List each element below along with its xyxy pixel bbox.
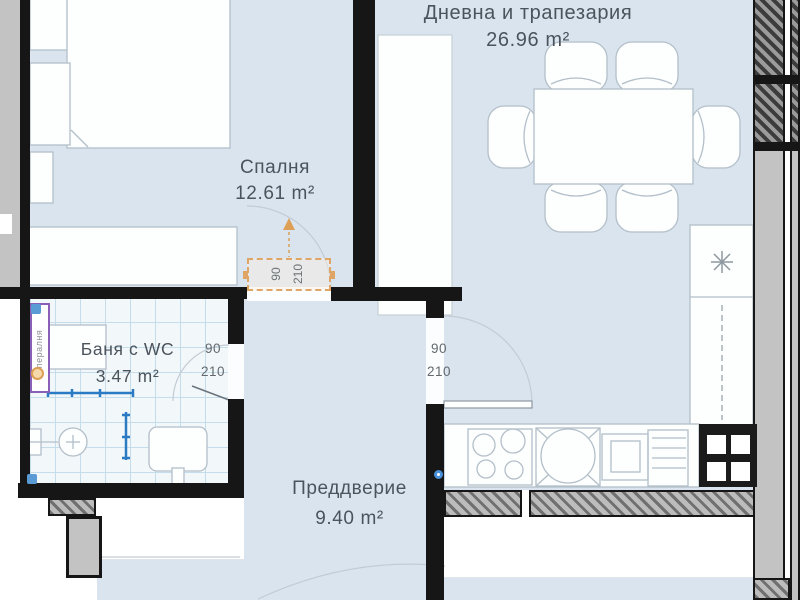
bed-pillow: [30, 63, 70, 145]
sink-bowl: [541, 429, 595, 483]
bedroom-left-wall: [20, 0, 30, 297]
dining-chair: [545, 182, 607, 232]
room-name: Спалня: [190, 155, 360, 181]
living-room-label: Дневна и трапезария 26.96 m²: [398, 0, 658, 54]
door-width: 90: [412, 337, 466, 360]
riser-marker-icon: [31, 304, 41, 314]
fridge-cell: [707, 462, 726, 481]
wall-separator: [753, 75, 800, 84]
living-door-dimensions: 90 210: [412, 337, 466, 383]
exterior-wall-bottom-a: [444, 490, 522, 517]
exterior-wall-right-gray: [753, 151, 785, 578]
bedroom-door-height: 210: [291, 256, 305, 292]
light-point-icon: [711, 251, 733, 273]
living-door-leaf: [444, 401, 532, 408]
corner-masonry: [753, 578, 790, 600]
fridge-cell: [731, 435, 750, 454]
party-wall-gray: [790, 151, 800, 600]
bathroom-left-wall: [20, 297, 30, 498]
exterior-wall-left: [0, 0, 20, 293]
living-door-stub: [426, 298, 444, 318]
room-area: 9.40 m²: [262, 504, 437, 534]
toilet: [149, 427, 207, 471]
bedroom-bathroom-wall: [0, 287, 247, 299]
wall-separator: [753, 142, 800, 151]
fridge-cell: [731, 462, 750, 481]
room-name: Преддверие: [262, 474, 437, 504]
room-name: Дневна и трапезария: [398, 0, 658, 27]
entry-door-arc: [258, 564, 445, 599]
door-frame-tick: [330, 271, 335, 279]
bathroom-bottom-wall: [18, 483, 244, 498]
bedroom-living-wall: [353, 0, 375, 287]
party-wall-hatch: [790, 0, 800, 75]
nightstand: [30, 0, 70, 50]
bed: [67, 0, 230, 148]
exterior-wall-right-hatch: [753, 84, 785, 142]
tall-cabinet: [378, 35, 452, 315]
nightstand-small: [30, 152, 53, 203]
dining-table: [534, 89, 693, 184]
fridge-cell: [707, 435, 726, 454]
room-area: 12.61 m²: [190, 181, 360, 207]
exterior-wall-bottom-b: [529, 490, 755, 517]
structural-pillar: [66, 516, 102, 578]
bedroom-door-frame: [247, 258, 331, 291]
bedroom-label: Спалня 12.61 m²: [190, 155, 360, 207]
floor-plan: пералня Дневна и трапезария 26.96 m² Спа…: [0, 0, 800, 600]
bedroom-door-width: 90: [269, 256, 283, 292]
bathroom-door-dimensions: 90 210: [186, 337, 240, 383]
door-direction-arrow: [283, 218, 295, 257]
room-area: 26.96 m²: [398, 27, 658, 54]
door-height: 210: [186, 360, 240, 383]
riser-marker-icon: [27, 474, 37, 484]
wall-joint: [0, 214, 12, 234]
exterior-wall-right-hatch: [753, 0, 785, 75]
wardrobe: [28, 227, 237, 285]
party-wall-hatch: [790, 84, 800, 142]
door-width: 90: [186, 337, 240, 360]
door-height: 210: [412, 360, 466, 383]
dining-chair: [616, 182, 678, 232]
masonry-pier: [48, 498, 96, 516]
door-frame-tick: [243, 271, 248, 279]
hallway-label: Преддверие 9.40 m²: [262, 474, 437, 534]
drain-symbol-icon: [31, 367, 44, 380]
